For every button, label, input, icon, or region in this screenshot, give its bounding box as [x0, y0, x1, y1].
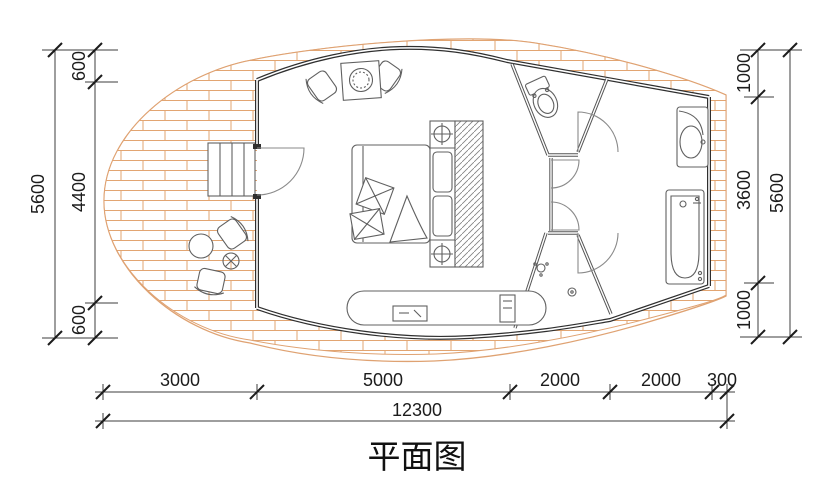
dim-label-2000-a: 2000: [540, 370, 580, 390]
dim-label-left-total: 5600: [28, 174, 48, 214]
dim-label-total-12300: 12300: [392, 400, 442, 420]
dim-label-left-4400: 4400: [69, 172, 89, 212]
pillow: [433, 152, 452, 192]
dim-label-3000: 3000: [160, 370, 200, 390]
drawing-title: 平面图: [368, 438, 467, 475]
dim-label-2000-b: 2000: [641, 370, 681, 390]
pillow: [433, 196, 452, 236]
dim-label-right-total: 5600: [767, 173, 787, 213]
floor-plan-drawing: 5600 600 4400 600 1000 3600 1000 5600: [0, 0, 837, 496]
floor-plan-page: 5600 600 4400 600 1000 3600 1000 5600: [0, 0, 837, 496]
dim-label-right-1000-top: 1000: [734, 53, 754, 93]
stairs: [208, 143, 255, 196]
dim-label-5000: 5000: [363, 370, 403, 390]
bathtub: [666, 190, 704, 284]
dim-label-left-600-top: 600: [69, 51, 89, 81]
dim-label-right-1000-bottom: 1000: [734, 290, 754, 330]
dimension-right: 1000 3600 1000 5600: [734, 43, 802, 344]
dimension-bottom: 3000 5000 2000 2000 300 12300: [95, 370, 737, 429]
tv-device: [393, 306, 427, 321]
tv-console: [347, 291, 546, 325]
dim-label-right-3600: 3600: [734, 170, 754, 210]
fire-table: [341, 61, 381, 101]
washbasin: [677, 107, 708, 167]
wardrobe: [455, 121, 483, 267]
dim-label-300: 300: [707, 370, 737, 390]
dim-label-left-600-bottom: 600: [69, 305, 89, 335]
throw-pillow: [350, 209, 384, 240]
deck-round-table: [189, 234, 213, 258]
